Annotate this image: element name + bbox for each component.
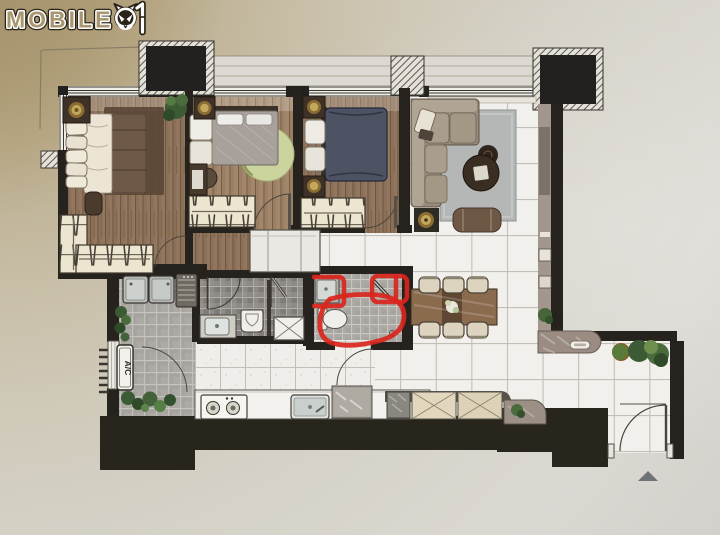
svg-text:A/C: A/C [123,361,133,376]
svg-text:MOBILE: MOBILE [6,7,113,33]
